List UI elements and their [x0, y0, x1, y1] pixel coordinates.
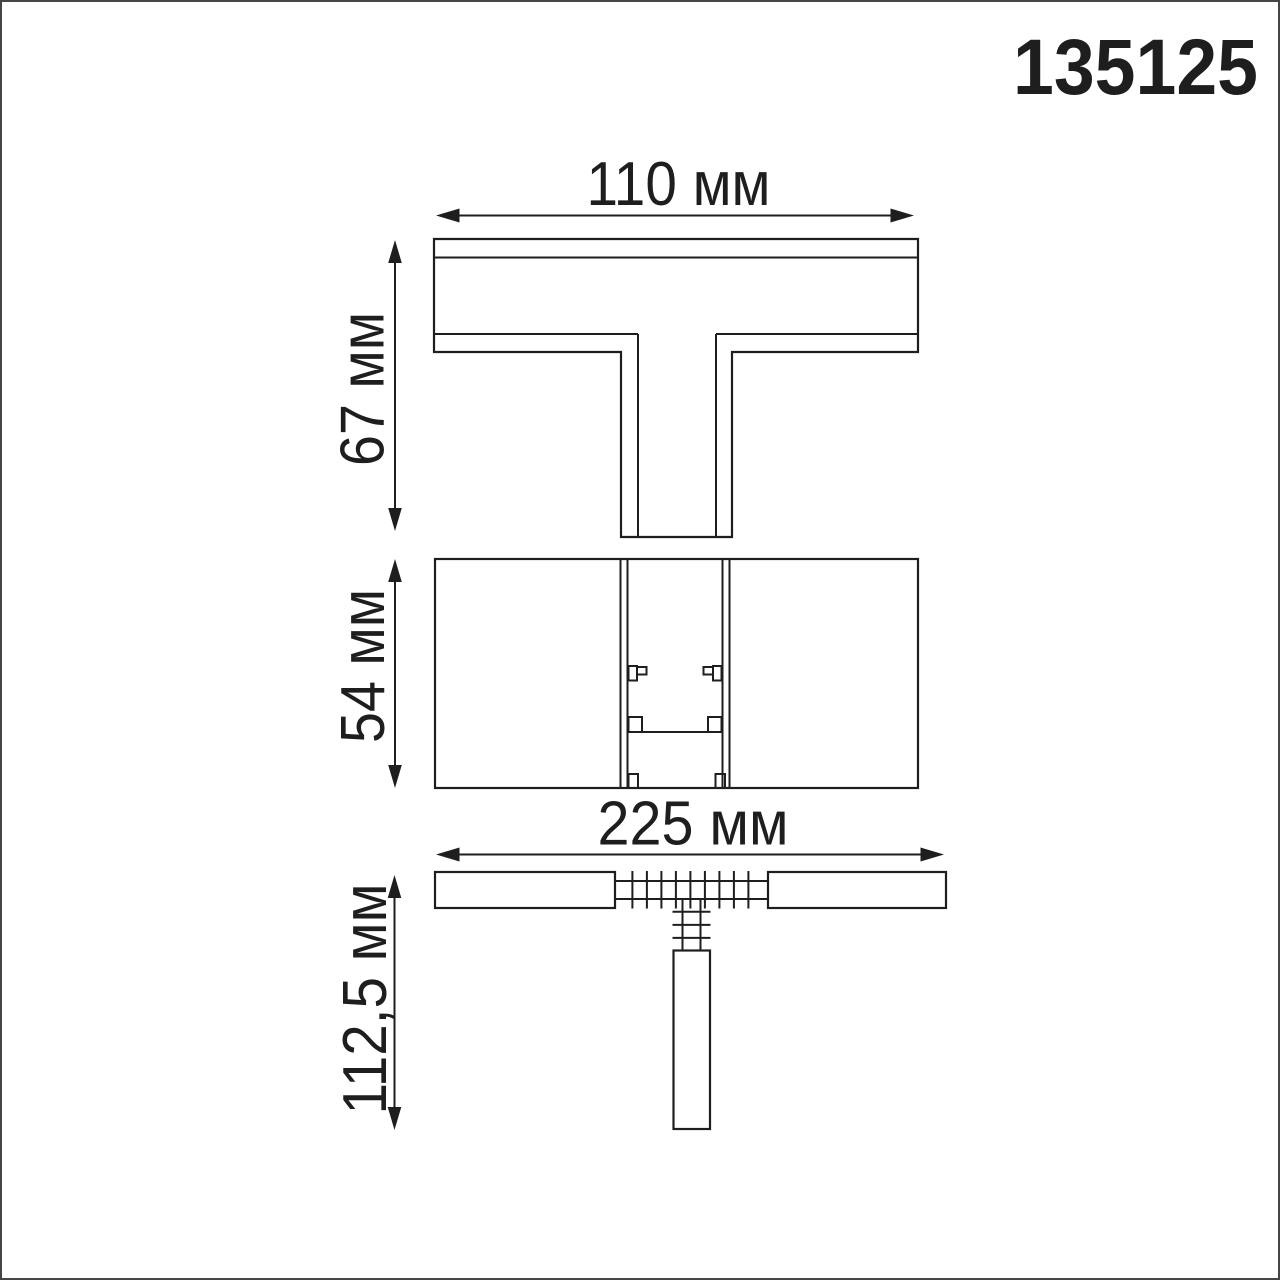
svg-text:110 мм: 110 мм: [587, 150, 771, 219]
svg-text:54 мм: 54 мм: [329, 589, 398, 743]
svg-text:67 мм: 67 мм: [329, 312, 398, 466]
svg-text:225 мм: 225 мм: [598, 790, 789, 859]
svg-text:135125: 135125: [1013, 22, 1258, 111]
svg-text:112,5 мм: 112,5 мм: [331, 884, 400, 1115]
